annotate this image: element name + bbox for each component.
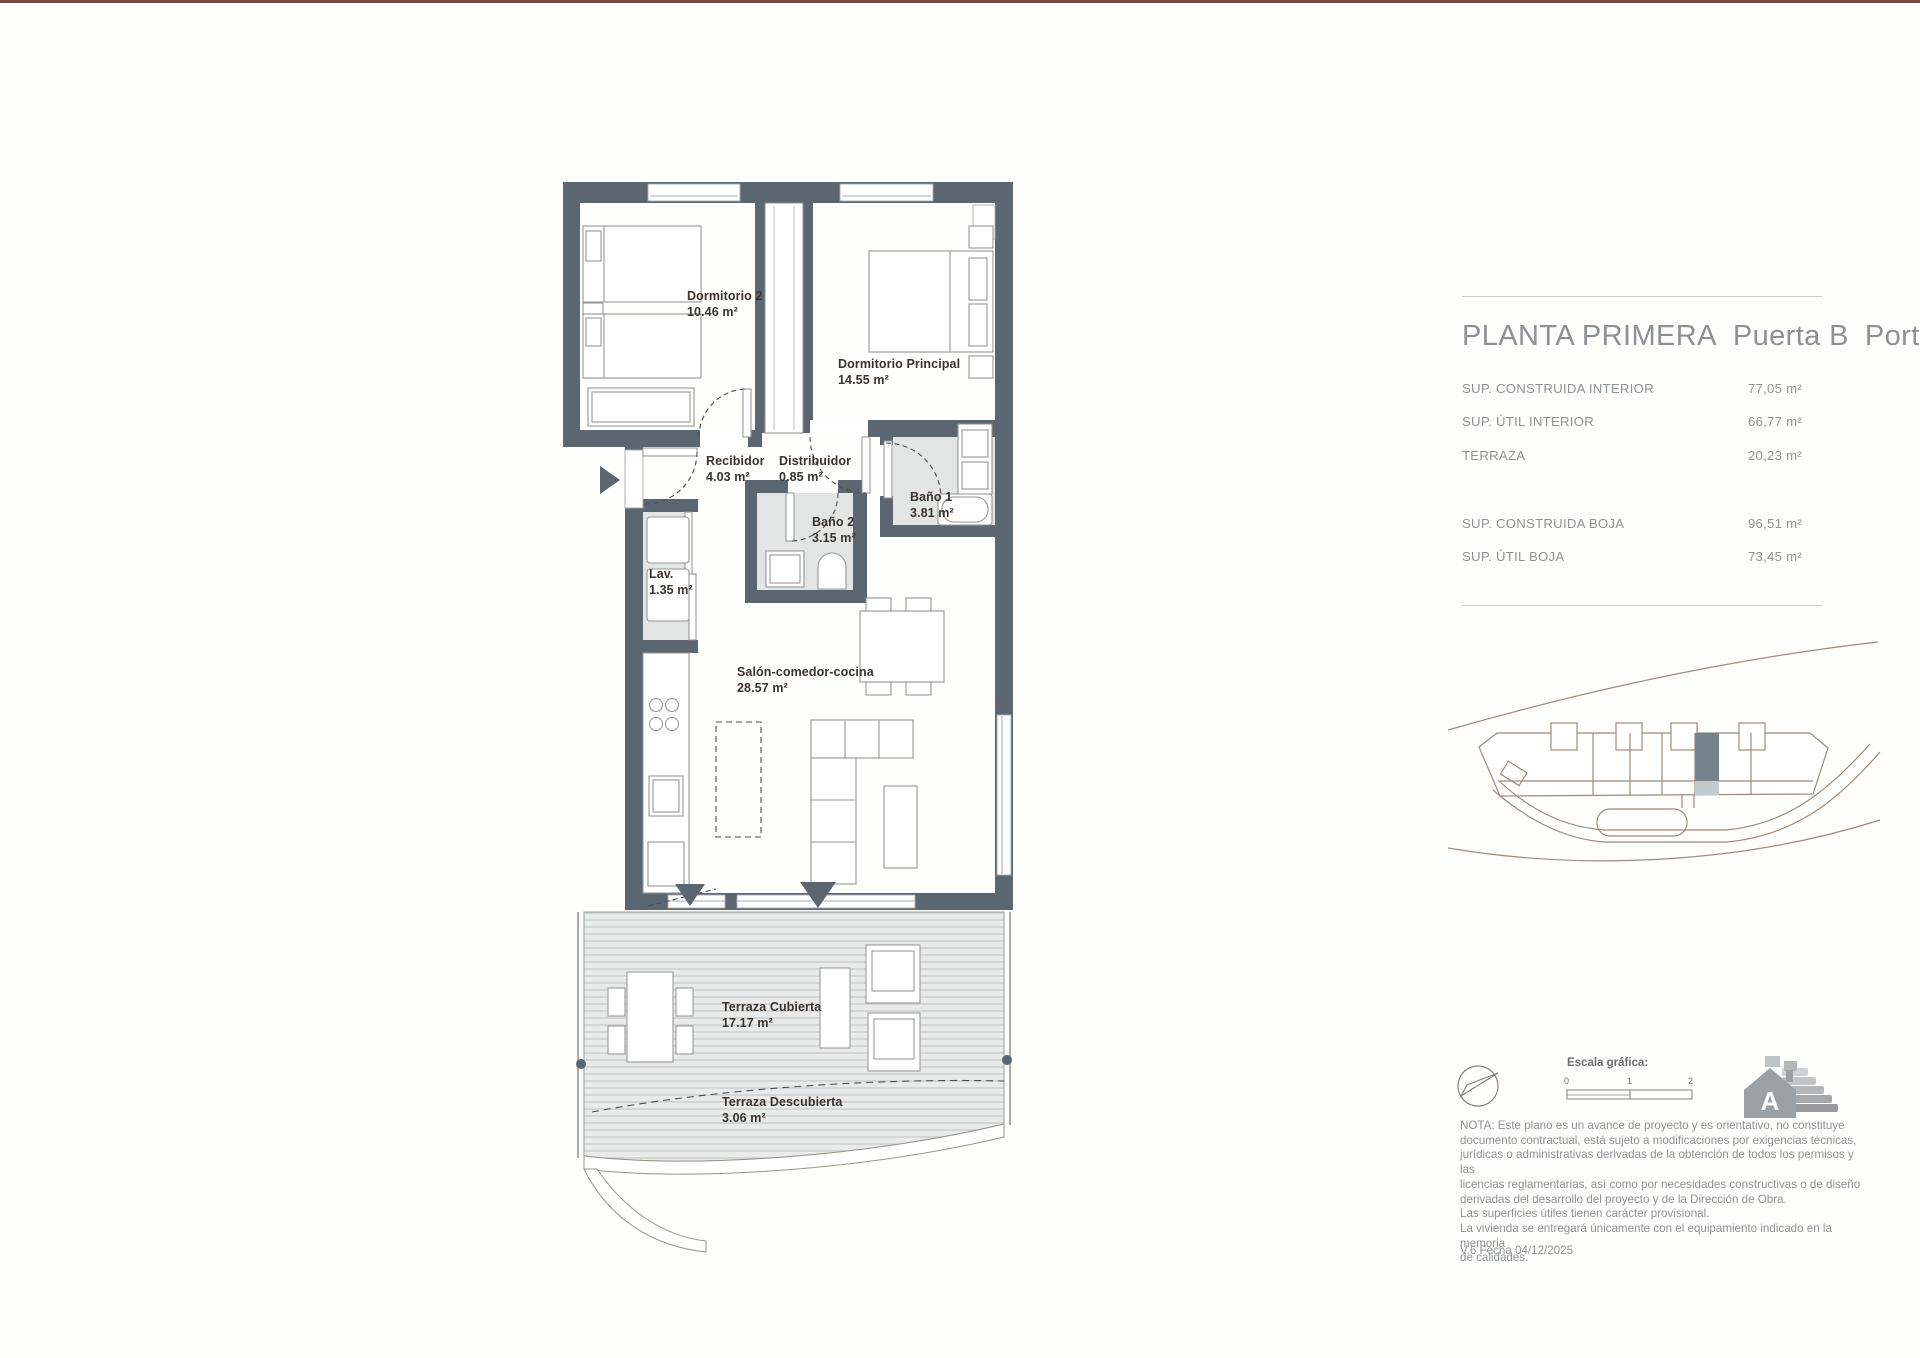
room-label-recibidor: Recibidor 4.03 m² [706, 453, 765, 485]
surface-value: 66,77 m² [1748, 414, 1802, 429]
scale-tick-0: 0 [1564, 1076, 1569, 1086]
room-name: Distribuidor [779, 453, 851, 469]
surface-row-construida-interior: SUP. CONSTRUIDA INTERIOR 77,05 m² [1462, 381, 1802, 396]
room-name: Terraza Descubierta [722, 1094, 842, 1110]
room-area: 17.17 m² [722, 1015, 821, 1031]
surface-value: 20,23 m² [1748, 448, 1802, 463]
room-name: Dormitorio Principal [838, 356, 960, 372]
surface-value: 96,51 m² [1748, 516, 1802, 531]
room-area: 28.57 m² [737, 680, 874, 696]
title-portal: Portal 3 [1865, 320, 1920, 352]
room-area: 0.85 m² [779, 469, 851, 485]
room-area: 10.46 m² [687, 304, 763, 320]
surface-label: TERRAZA [1462, 448, 1525, 463]
page-title: PLANTA PRIMERAPuerta BPortal 3 [1462, 320, 1920, 353]
scale-tick-1: 1 [1627, 1076, 1632, 1086]
surface-label: SUP. CONSTRUIDA BOJA [1462, 516, 1624, 531]
title-door: Puerta B [1733, 320, 1849, 352]
room-area: 3.06 m² [722, 1110, 842, 1126]
divider-bottom [1462, 605, 1822, 606]
room-label-distribuidor: Distribuidor 0.85 m² [779, 453, 851, 485]
surface-value: 77,05 m² [1748, 381, 1802, 396]
site-plan [1448, 642, 1880, 861]
divider-top [1462, 296, 1822, 297]
scale-label: Escala gráfica: [1567, 1057, 1648, 1069]
room-area: 1.35 m² [649, 582, 693, 598]
terrace-group [576, 912, 1012, 1252]
room-name: Dormitorio 2 [687, 288, 763, 304]
room-label-salon: Salón-comedor-cocina 28.57 m² [737, 664, 874, 696]
room-name: Salón-comedor-cocina [737, 664, 874, 680]
room-label-bano-2: Baño 2 3.15 m² [812, 514, 856, 546]
north-compass-icon [1458, 1066, 1498, 1106]
surface-label: SUP. ÚTIL INTERIOR [1462, 414, 1594, 429]
title-floor: PLANTA PRIMERA [1462, 320, 1717, 352]
surface-value: 73,45 m² [1748, 549, 1802, 564]
room-area: 14.55 m² [838, 372, 960, 388]
version-date: V.6 Fecha 04/12/2025 [1460, 1244, 1573, 1257]
surface-row-util-boja: SUP. ÚTIL BOJA 73,45 m² [1462, 549, 1802, 564]
room-label-lavadero: Lav. 1.35 m² [649, 566, 693, 598]
room-name: Baño 2 [812, 514, 856, 530]
room-area: 3.81 m² [910, 505, 954, 521]
energy-rating-letter: A [1750, 1086, 1790, 1117]
room-name: Baño 1 [910, 489, 954, 505]
surface-row-terraza: TERRAZA 20,23 m² [1462, 448, 1802, 463]
scale-bar [1567, 1090, 1692, 1099]
room-name: Lav. [649, 566, 693, 582]
room-label-terraza-descubierta: Terraza Descubierta 3.06 m² [722, 1094, 842, 1126]
room-area: 4.03 m² [706, 469, 765, 485]
room-label-dormitorio-2: Dormitorio 2 10.46 m² [687, 288, 763, 320]
surface-label: SUP. CONSTRUIDA INTERIOR [1462, 381, 1654, 396]
room-label-terraza-cubierta: Terraza Cubierta 17.17 m² [722, 999, 821, 1031]
floorplan-page: Dormitorio 2 10.46 m² Dormitorio Princip… [0, 0, 1920, 1358]
room-name: Recibidor [706, 453, 765, 469]
highlighted-unit [1695, 733, 1719, 781]
room-area: 3.15 m² [812, 530, 856, 546]
scale-tick-2: 2 [1688, 1076, 1693, 1086]
surface-row-construida-boja: SUP. CONSTRUIDA BOJA 96,51 m² [1462, 516, 1802, 531]
room-label-dormitorio-principal: Dormitorio Principal 14.55 m² [838, 356, 960, 388]
kitchen-island-dashed [716, 722, 761, 837]
room-label-bano-1: Baño 1 3.81 m² [910, 489, 954, 521]
surface-row-util-interior: SUP. ÚTIL INTERIOR 66,77 m² [1462, 414, 1802, 429]
surface-label: SUP. ÚTIL BOJA [1462, 549, 1564, 564]
room-name: Terraza Cubierta [722, 999, 821, 1015]
